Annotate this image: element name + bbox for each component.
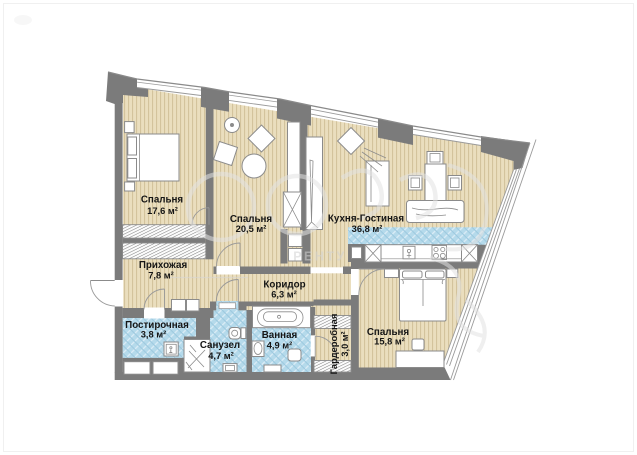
svg-text:4,7 м²: 4,7 м² (208, 351, 233, 361)
svg-text:Санузел: Санузел (200, 340, 240, 351)
svg-text:Гардеробная: Гардеробная (328, 314, 339, 375)
svg-text:Прихожая: Прихожая (139, 260, 188, 271)
svg-text:36,8 м²: 36,8 м² (352, 224, 383, 234)
svg-text:6,3 м²: 6,3 м² (271, 290, 296, 300)
svg-text:7,8 м²: 7,8 м² (148, 270, 173, 280)
svg-text:3,8 м²: 3,8 м² (141, 330, 166, 340)
svg-text:3,0 м²: 3,0 м² (340, 331, 350, 356)
svg-text:17,6 м²: 17,6 м² (147, 206, 178, 216)
svg-text:РЕНТУ: РЕНТУ (293, 250, 347, 264)
svg-text:Ванная: Ванная (262, 330, 298, 341)
svg-text:Спальня: Спальня (141, 194, 184, 205)
svg-text:Кухня-Гостиная: Кухня-Гостиная (328, 214, 404, 225)
svg-text:20,5 м²: 20,5 м² (236, 224, 267, 234)
svg-text:4,9 м²: 4,9 м² (267, 341, 292, 351)
svg-text:15,8 м²: 15,8 м² (374, 337, 405, 347)
